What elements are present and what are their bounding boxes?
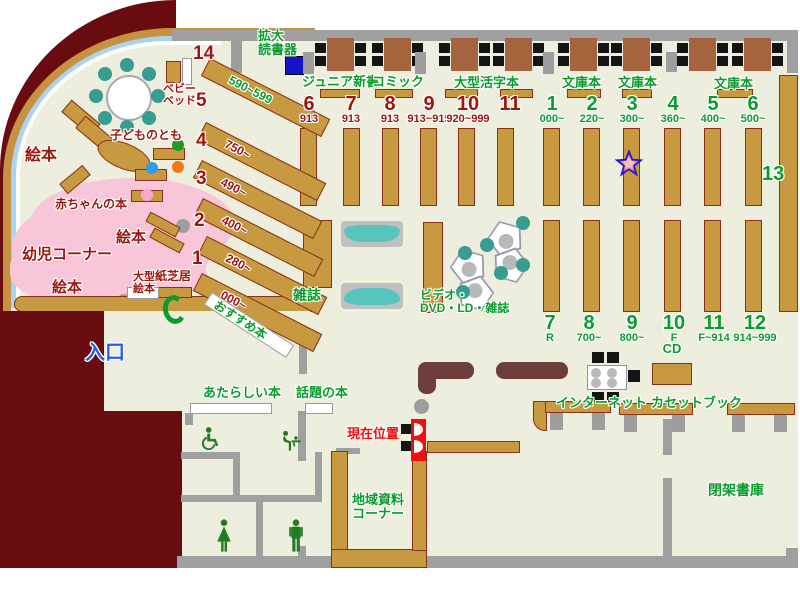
toilet-wall: [181, 495, 321, 502]
wheelchair-icon: [197, 426, 225, 454]
chair: [355, 56, 366, 66]
chair: [439, 43, 450, 53]
bookshelf: [664, 128, 681, 206]
desk-leg: [774, 415, 787, 432]
chair: [772, 43, 783, 53]
pillar: [415, 52, 426, 74]
shelf-number: 3: [196, 169, 207, 190]
current-location-marker: [411, 419, 426, 461]
chair: [479, 43, 490, 53]
bookshelf: [420, 128, 437, 206]
current-location-label: 現在位置: [347, 427, 399, 441]
chair: [651, 56, 662, 66]
sofa: [341, 221, 403, 247]
shelf-number: 4: [196, 131, 207, 152]
bunko-label: 文庫本: [562, 76, 601, 90]
chair: [592, 352, 604, 363]
sofa: [341, 283, 403, 309]
service-counter: [418, 362, 436, 394]
local-materials-shelf: [331, 549, 427, 568]
stool: [146, 162, 158, 174]
pillar: [666, 52, 677, 72]
bookshelf: [497, 128, 514, 206]
kids-corner-label: 幼児コーナー: [22, 247, 112, 263]
stool: [480, 238, 494, 252]
stool: [494, 266, 508, 280]
shelf-number-group: 10920~999: [444, 94, 492, 125]
library-floor-map: 590~599 750~ 490~ 400~ 280~ 000~ 14 5 4 …: [0, 0, 800, 600]
cd-shelf: [652, 363, 692, 385]
chair: [439, 56, 450, 66]
bookshelf: [458, 128, 475, 206]
wall-stub: [786, 548, 798, 564]
internet-label: インターネット: [556, 396, 647, 410]
bookshelf: [623, 220, 640, 312]
bottom-wall: [177, 556, 798, 568]
pillar: [231, 41, 242, 73]
chair: [598, 43, 609, 53]
entrance-label: 入口: [85, 343, 125, 365]
shelf-number: 14: [193, 44, 214, 65]
chair: [355, 43, 366, 53]
chair: [607, 352, 619, 363]
magnifier-label: 拡大 読書器: [258, 29, 297, 57]
stool: [516, 216, 530, 230]
chair: [558, 56, 569, 66]
cd-label: CD: [655, 342, 689, 356]
stool: [142, 111, 156, 125]
desk-leg: [592, 413, 605, 430]
topic-books-label: 話題の本: [296, 386, 348, 400]
chair: [717, 56, 728, 66]
shelf-number: 2: [194, 211, 205, 232]
chair: [677, 56, 688, 66]
topic-books-shelf: [305, 403, 333, 414]
bookshelf: [583, 128, 600, 206]
bookshelf: [704, 220, 721, 312]
chair: [315, 56, 326, 66]
wall: [185, 413, 193, 425]
chair: [493, 43, 504, 53]
stool: [172, 161, 184, 173]
toilet-wall: [315, 452, 322, 502]
stool: [98, 67, 112, 81]
picture-books-label: 絵本: [116, 230, 146, 246]
chair: [401, 424, 411, 434]
baby-change-icon: [278, 429, 304, 455]
chair: [651, 43, 662, 53]
bookshelf-13: [779, 75, 798, 312]
stool: [516, 258, 530, 272]
chair: [717, 43, 728, 53]
magnifier-device-icon: [285, 56, 304, 75]
chair: [372, 56, 383, 66]
cassette-books-label: カセットブック: [651, 396, 742, 410]
desk-leg: [550, 413, 563, 430]
large-print-label: 大型活字本: [454, 76, 519, 90]
new-books-label: あたらしい本: [203, 386, 281, 400]
closed-stacks-label: 閉架書庫: [708, 483, 764, 498]
shelf-number-group: 12914~999: [731, 313, 779, 344]
comics-label: コミック: [372, 75, 424, 89]
stool: [458, 246, 472, 260]
chair: [558, 43, 569, 53]
baby-bed-label: ベビー ベッド: [163, 84, 196, 108]
shelf-number-group: 9800~: [608, 313, 656, 344]
stacks-wall: [663, 419, 672, 455]
bookshelf: [543, 128, 560, 206]
bookshelf: [704, 128, 721, 206]
chair: [772, 56, 783, 66]
bookshelf: [583, 220, 600, 312]
shelf-number-group: 6913: [285, 94, 333, 125]
bookshelf: [343, 128, 360, 206]
bunko-label: 文庫本: [618, 76, 657, 90]
kamishibai-label: 紙芝居: [155, 270, 191, 283]
local-materials-label: 地域資料 コーナー: [346, 493, 410, 521]
toilet-wall: [233, 452, 240, 500]
baby-bed: [166, 61, 181, 83]
shelf-number-group: 8700~: [565, 313, 613, 344]
service-counter: [496, 362, 568, 379]
chair: [479, 56, 490, 66]
desk-leg: [732, 415, 745, 432]
chair: [401, 441, 411, 451]
chair: [677, 43, 688, 53]
stool: [141, 189, 153, 201]
chair: [598, 56, 609, 66]
stool: [120, 58, 134, 72]
chair: [372, 43, 383, 53]
baby-books-label: 赤ちゃんの本: [55, 198, 127, 211]
internet-table: [587, 365, 627, 390]
women-toilet-icon: [214, 519, 234, 553]
chair: [732, 56, 743, 66]
magazines-label: 雑誌: [293, 288, 321, 303]
local-materials-shelf: [412, 451, 427, 551]
desk-leg: [624, 415, 637, 432]
pillar: [543, 52, 554, 74]
chair: [628, 370, 640, 382]
shelf-number-group: 6500~: [729, 94, 777, 125]
shelf-13-label: 13: [762, 164, 784, 186]
bookshelf: [382, 128, 399, 206]
pillar: [414, 399, 429, 414]
av-corner-label: ビデオ・ DVD・LD・雑誌: [420, 289, 509, 315]
desk-leg: [672, 415, 685, 432]
kodomo-no-tomo-label: 子どものとも: [110, 129, 182, 142]
toilet-wall: [256, 495, 263, 567]
stool: [89, 89, 103, 103]
junior-shinsho-label: ジュニア新書: [302, 75, 379, 89]
stacks-wall: [663, 478, 672, 558]
chair: [732, 43, 743, 53]
baby-bed: [182, 58, 192, 85]
chair: [493, 56, 504, 66]
picture-books-label: 絵本: [52, 280, 82, 296]
bookshelf: [745, 220, 762, 312]
shelf-number: 1: [192, 249, 203, 270]
bookshelf: [543, 220, 560, 312]
shelf-number-group: 11: [486, 94, 534, 114]
bookshelf: [745, 128, 762, 206]
right-wall-stub: [787, 41, 798, 73]
chair: [315, 43, 326, 53]
shelf-number: 5: [196, 91, 207, 112]
bunko-label: 文庫本: [714, 77, 753, 91]
new-books-shelf: [190, 403, 272, 414]
picture-books-label: 絵本: [25, 147, 57, 164]
men-toilet-icon: [286, 519, 306, 553]
bookshelf: [427, 441, 520, 453]
stool: [142, 67, 156, 81]
chair: [611, 56, 622, 66]
exterior-wall: [0, 411, 182, 568]
bookshelf: [664, 220, 681, 312]
chair: [611, 43, 622, 53]
pillar: [303, 52, 314, 74]
